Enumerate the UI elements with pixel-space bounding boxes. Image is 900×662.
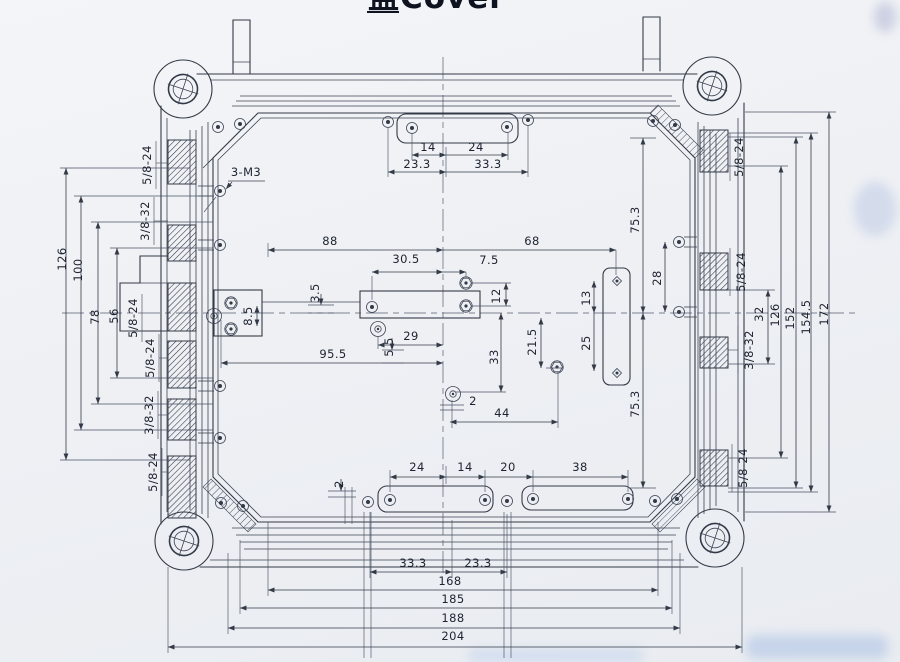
thread-section xyxy=(168,283,196,331)
thread-section xyxy=(168,456,196,518)
dim-left-78: 78 xyxy=(88,309,102,324)
dim-28: 28 xyxy=(650,270,664,285)
dim-88: 88 xyxy=(322,234,337,248)
corner-hole xyxy=(695,518,735,558)
dim-753-upper: 75.3 xyxy=(628,206,642,233)
dim-13: 13 xyxy=(579,290,593,305)
ring-screw xyxy=(371,322,386,337)
dim-top-333: 33.3 xyxy=(474,157,501,171)
corner-hatch-band xyxy=(652,479,705,532)
dim-168: 168 xyxy=(438,574,461,588)
drawing-sheet: 盖Cover xyxy=(0,0,900,662)
dim-right-32: 32 xyxy=(752,306,766,321)
hex-screw xyxy=(551,361,563,373)
dim-left-100: 100 xyxy=(71,258,85,281)
dim-215: 21.5 xyxy=(525,328,539,355)
hex-screw xyxy=(460,300,472,312)
dim-top-14: 14 xyxy=(420,140,435,154)
boss-hole xyxy=(613,369,622,378)
dim-85: 8.5 xyxy=(241,306,255,326)
rim-lines xyxy=(190,96,716,549)
dim-305: 30.5 xyxy=(392,252,419,266)
thread-callout-label: 3-M3 xyxy=(231,165,261,179)
thread-section xyxy=(168,140,196,184)
dim-955: 95.5 xyxy=(319,347,346,361)
dim-68: 68 xyxy=(524,234,539,248)
dim-bot-38: 38 xyxy=(572,460,587,474)
thread-section xyxy=(168,341,196,388)
wall-stud xyxy=(674,307,698,318)
dim-75: 7.5 xyxy=(479,253,499,267)
dim-33: 33 xyxy=(487,349,501,364)
boss-hole xyxy=(480,495,491,506)
dim-bot-24: 24 xyxy=(409,460,424,474)
dim-35: 3.5 xyxy=(308,283,322,303)
thread-section xyxy=(168,399,196,440)
thread-section xyxy=(700,253,728,290)
dim-2-bottom: 2 xyxy=(332,480,346,488)
mount-tab xyxy=(643,17,660,71)
thread-section xyxy=(700,337,728,368)
dim-right-152: 152 xyxy=(783,306,797,329)
corner-screw xyxy=(238,501,249,512)
dim-25: 25 xyxy=(579,335,593,350)
dim-top-233: 23.3 xyxy=(403,157,430,171)
mount-tab xyxy=(233,20,250,74)
corner-screw xyxy=(235,119,246,130)
corner-screw xyxy=(213,122,224,133)
dim-right-172: 172 xyxy=(817,302,831,325)
dim-204: 204 xyxy=(441,629,464,643)
corner-hatch-band xyxy=(650,105,703,158)
dim-55: 5.5 xyxy=(382,337,396,357)
boss-hole xyxy=(367,302,378,313)
dim-29: 29 xyxy=(403,329,418,343)
boss-hole xyxy=(407,123,418,134)
thread-left-0: 5/8-24 xyxy=(140,145,154,185)
boss-hole xyxy=(623,494,634,505)
thread-right-0: 5/8-24 xyxy=(732,137,746,177)
corner-hole xyxy=(163,69,203,109)
dim-185: 185 xyxy=(441,592,464,606)
corner-hole xyxy=(164,521,204,561)
corner-hole xyxy=(692,66,732,106)
hex-screw xyxy=(460,277,472,289)
dim-12: 12 xyxy=(489,288,503,303)
wall-stud xyxy=(502,496,513,507)
thread-right-1: 5/8-24 xyxy=(734,252,748,292)
corner-screw xyxy=(648,116,659,127)
thread-section xyxy=(700,450,728,486)
boss-hole xyxy=(385,495,396,506)
thread-label-leaders xyxy=(142,133,738,496)
corner-hatch-band xyxy=(203,479,256,532)
center-boss xyxy=(360,291,480,318)
thread-right-2: 3/8-32 xyxy=(742,330,756,370)
dim-right-126: 126 xyxy=(768,303,782,326)
wall-stud xyxy=(363,497,374,508)
dim-2-center: 2 xyxy=(469,394,477,408)
dim-top-24: 24 xyxy=(468,140,483,154)
thread-left-4: 3/8-32 xyxy=(142,395,156,435)
dim-753-lower: 75.3 xyxy=(628,390,642,417)
thread-left-2: 5/8-24 xyxy=(126,298,140,338)
dim-188: 188 xyxy=(441,611,464,625)
engineering-drawing: 盖Cover xyxy=(0,0,900,662)
dim-44: 44 xyxy=(494,406,509,420)
dim-bot-333: 33.3 xyxy=(399,556,426,570)
wall-screw xyxy=(523,115,534,126)
drawing-title: 盖Cover xyxy=(368,0,506,16)
right-wall-features xyxy=(674,130,729,486)
corner-screw xyxy=(650,496,661,507)
boss-hole xyxy=(502,122,513,133)
center-features xyxy=(360,268,630,402)
dim-bot-14: 14 xyxy=(457,460,472,474)
dim-left-126: 126 xyxy=(55,247,69,270)
dim-right-1545: 154.5 xyxy=(799,300,813,335)
thread-section xyxy=(168,225,196,261)
thread-section xyxy=(700,130,728,172)
thread-left-3: 5/8-24 xyxy=(143,338,157,378)
wall-stud xyxy=(674,237,698,248)
dim-bot-233: 23.3 xyxy=(464,556,491,570)
dim-left-56: 56 xyxy=(107,308,121,323)
thread-right-3: 5/8-24 xyxy=(736,448,750,488)
boss-hole xyxy=(613,277,622,286)
boss-hole xyxy=(528,494,539,505)
thread-left-1: 3/8-32 xyxy=(138,201,152,241)
thread-left-5: 5/8-24 xyxy=(146,452,160,492)
ring-screw xyxy=(446,387,461,402)
dim-bot-20: 20 xyxy=(500,460,515,474)
